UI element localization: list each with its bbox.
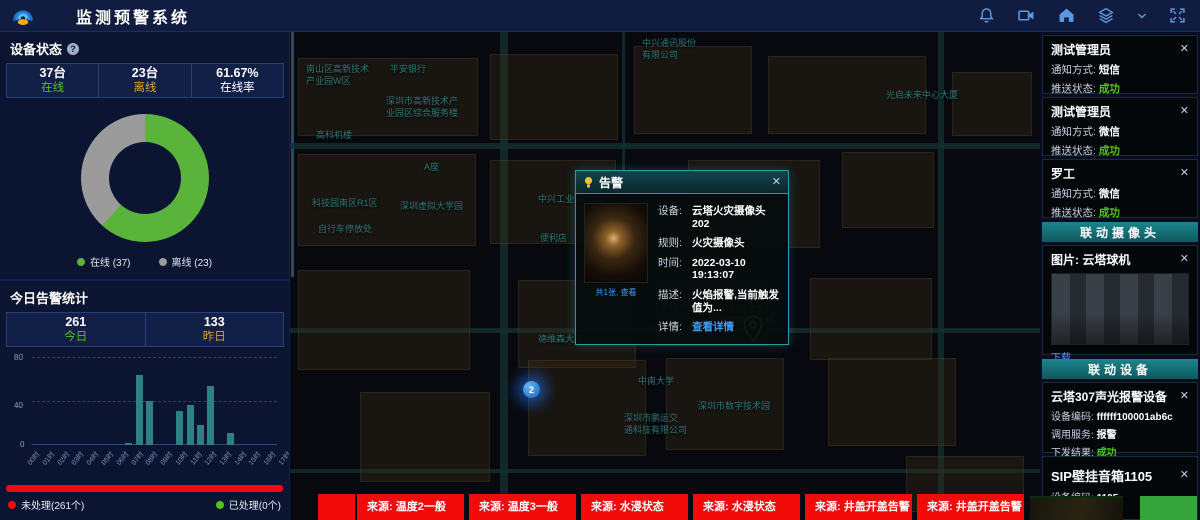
header-actions: [978, 7, 1186, 24]
map-place-label: 深圳市高新技术产 业园区综合服务楼: [386, 96, 458, 119]
bar-08时: [114, 357, 124, 445]
page-title: 监测预警系统: [76, 4, 190, 28]
ticker-item[interactable]: 来源: 水浸状态: [581, 494, 688, 520]
map-place-label: 科技园南区R1区: [312, 198, 378, 210]
bar-07时: [103, 357, 113, 445]
help-icon[interactable]: ?: [67, 43, 79, 55]
map-building: [490, 54, 618, 140]
map-building: [360, 392, 490, 482]
ticker-green-image[interactable]: [1140, 496, 1197, 520]
map-place-label: 深圳市数字技术园: [698, 401, 770, 413]
alert-ticker: 来源: 温度2一般 来源: 温度3一般 来源: 水浸状态 来源: 水浸状态 来源…: [290, 493, 1200, 520]
bar-02时: [52, 357, 62, 445]
legend-unprocessed: 未处理(261个): [8, 497, 84, 512]
notification-card: 罗工✕ 通知方式: 微信 推送状态: 成功: [1042, 159, 1198, 218]
map-place-label: 便利店: [540, 233, 567, 245]
bar-12时: [154, 357, 164, 445]
bar-17时: [205, 357, 215, 445]
bar-18时: [216, 357, 226, 445]
close-icon[interactable]: ✕: [1180, 168, 1189, 179]
close-icon[interactable]: ✕: [1180, 470, 1189, 481]
map-place-label: 中兴通讯股份 有限公司: [642, 38, 696, 61]
y-tick: 40: [14, 401, 23, 410]
bar-04时: [73, 357, 83, 445]
popup-row-device: 设备:云塔火灾摄像头202: [658, 205, 780, 230]
map-road: [290, 143, 1040, 149]
ticker-item[interactable]: 来源: 温度3一般: [469, 494, 576, 520]
bar-15时: [185, 357, 195, 445]
linked-camera-header: 联动摄像头: [1042, 222, 1198, 242]
top-bar: 监测预警系统: [0, 0, 1200, 32]
device-status-stats: 37台 在线 23台 离线 61.67% 在线率: [0, 63, 289, 98]
stat-yesterday: 133 昨日: [145, 312, 285, 347]
ticker-item[interactable]: 来源: 水浸状态: [693, 494, 800, 520]
map-canvas[interactable]: 中兴通讯股份 有限公司平安银行南山区高新技术 产业园W区光启未来中心大厦深圳市高…: [290, 32, 1040, 520]
device-cluster-marker[interactable]: 2: [523, 381, 540, 398]
close-icon[interactable]: ✕: [1180, 391, 1189, 402]
alert-popup-body: 共1张, 查看 设备:云塔火灾摄像头202 规则:火灾摄像头 时间:2022-0…: [576, 194, 788, 344]
stat-today: 261 今日: [6, 312, 146, 347]
unprocessed-progress-bar: [6, 485, 283, 492]
app-logo-icon: [10, 3, 36, 29]
alert-popup: 告警 ✕ 共1张, 查看 设备:云塔火灾摄像头202 规则:火灾摄像头 时间:: [575, 170, 789, 345]
stat-offline: 23台 离线: [98, 63, 191, 98]
close-icon[interactable]: ✕: [1180, 44, 1189, 55]
map-building: [952, 72, 1032, 136]
right-panel: 测试管理员✕ 通知方式: 短信 推送状态: 成功 测试管理员✕ 通知方式: 微信…: [1042, 32, 1198, 520]
video-camera-icon[interactable]: [1017, 7, 1036, 24]
today-alert-stats: 261 今日 133 昨日: [0, 312, 289, 347]
bar-10时: [134, 357, 144, 445]
map-place-label: 高科机楼: [316, 130, 352, 142]
ticker-item[interactable]: 来源: 井盖开盖告警: [917, 494, 1024, 520]
bar-16时: [195, 357, 205, 445]
map-place-label: 光启未来中心大厦: [886, 90, 958, 102]
map-road: [291, 32, 294, 277]
map-place-label: 平安银行: [390, 64, 426, 76]
map-place-label: 深圳市鹏运交 通科技有限公司: [624, 413, 687, 436]
stat-online: 37台 在线: [6, 63, 99, 98]
map-building: [828, 358, 956, 446]
popup-row-desc: 描述:火焰报警,当前触发值为...: [658, 289, 780, 314]
view-details-link[interactable]: 查看详情: [692, 321, 780, 334]
layers-icon[interactable]: [1097, 7, 1115, 24]
bar-19时: [226, 357, 236, 445]
bar-14时: [175, 357, 185, 445]
popup-row-rule: 规则:火灾摄像头: [658, 237, 780, 250]
notification-card: 测试管理员✕ 通知方式: 短信 推送状态: 成功: [1042, 35, 1198, 94]
bar-23时: [267, 357, 277, 445]
y-tick: 0: [20, 440, 24, 449]
hour-labels: 00时01时02时03时04时05时06时07时08时09时10时11时12时1…: [32, 447, 277, 469]
hour-bars: [32, 357, 277, 445]
bar-11时: [144, 357, 154, 445]
map-building: [298, 270, 470, 370]
bar-03时: [63, 357, 73, 445]
map-place-label: 自行车停放处: [318, 224, 372, 236]
map-place-label: 深圳虚拟大学园: [400, 201, 463, 213]
chevron-down-icon[interactable]: [1137, 11, 1147, 21]
bell-icon[interactable]: [978, 7, 995, 24]
y-tick: 80: [14, 353, 23, 362]
camera-card: 图片: 云塔球机✕ 下载: [1042, 245, 1198, 355]
today-alerts-title: 今日告警统计: [0, 281, 289, 312]
ticker-item-partial[interactable]: [318, 494, 355, 520]
map-building: [810, 278, 932, 360]
close-icon[interactable]: ✕: [1180, 254, 1189, 265]
alert-popup-title: 告警: [599, 174, 772, 191]
map-place-label: A座: [424, 162, 439, 174]
hourly-bar-chart: 80 40 0 00时01时02时03时04时05时06时07时08时09时10…: [6, 351, 283, 469]
close-icon[interactable]: ✕: [772, 177, 781, 188]
donut-legend: 在线 (37) 离线 (23): [0, 252, 289, 273]
ticker-item[interactable]: 来源: 井盖开盖告警: [805, 494, 912, 520]
bar-05时: [83, 357, 93, 445]
bar-13时: [165, 357, 175, 445]
bar-09时: [124, 357, 134, 445]
linked-device-card: 云塔307声光报警设备✕ 设备编码: ffffff100001ab6c 调用服务…: [1042, 382, 1198, 453]
popup-row-detail: 详情:查看详情: [658, 321, 780, 334]
left-panel: 设备状态 ? 37台 在线 23台 离线 61.67% 在线率 在线 (37) …: [0, 32, 290, 520]
device-status-title: 设备状态 ?: [0, 32, 289, 63]
map-building: [528, 360, 646, 456]
bulb-icon: [583, 176, 594, 189]
device-donut-chart: [0, 104, 289, 252]
snapshot-view-link[interactable]: 共1张, 查看: [584, 287, 648, 298]
camera-snapshot-image[interactable]: [1051, 273, 1189, 345]
map-place-label: 中南大学: [638, 376, 674, 388]
process-legend: 未处理(261个) 已处理(0个): [0, 492, 289, 518]
legend-online[interactable]: 在线 (37): [77, 254, 131, 269]
bar-22时: [256, 357, 266, 445]
alert-snapshot-image[interactable]: [584, 203, 648, 283]
map-place-label: 南山区高新技术 产业园W区: [306, 64, 369, 87]
close-icon[interactable]: ✕: [1180, 106, 1189, 117]
notification-card: 测试管理员✕ 通知方式: 微信 推送状态: 成功: [1042, 97, 1198, 156]
bar-06时: [93, 357, 103, 445]
app-root: 监测预警系统 设备状态 ?: [0, 0, 1200, 520]
map-road: [938, 32, 944, 520]
ticker-snapshot-image[interactable]: [1030, 496, 1123, 520]
ticker-item[interactable]: 来源: 温度2一般: [357, 494, 464, 520]
home-icon[interactable]: [1058, 7, 1075, 24]
stat-online-rate: 61.67% 在线率: [191, 63, 284, 98]
bar-21时: [246, 357, 256, 445]
bar-20时: [236, 357, 246, 445]
linked-device-header: 联动设备: [1042, 359, 1198, 379]
map-building: [842, 152, 934, 228]
alert-popup-header: 告警 ✕: [576, 171, 788, 194]
legend-offline[interactable]: 离线 (23): [159, 254, 213, 269]
bar-01时: [42, 357, 52, 445]
fullscreen-icon[interactable]: [1169, 7, 1186, 24]
bar-00时: [32, 357, 42, 445]
legend-processed: 已处理(0个): [216, 497, 281, 512]
popup-row-time: 时间:2022-03-10 19:13:07: [658, 257, 780, 282]
